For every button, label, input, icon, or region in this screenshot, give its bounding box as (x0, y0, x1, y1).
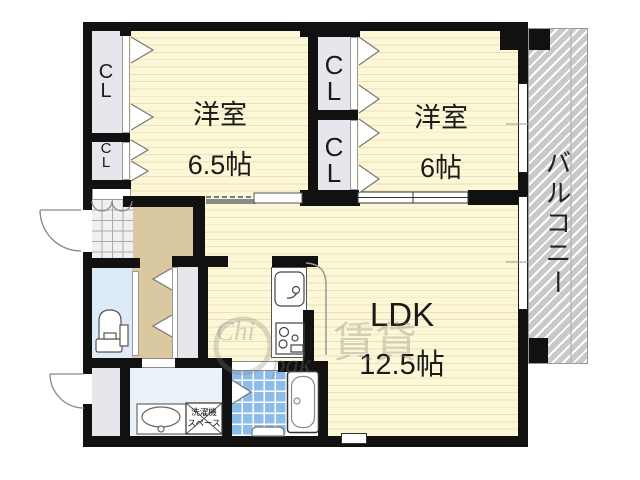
laundry-space-label: 洗濯機 スペース (186, 407, 222, 429)
bath-counter-icon (252, 427, 284, 436)
bedroom1-label: 洋室 6.5帖 (140, 81, 300, 199)
bedroom2-name: 洋室 (361, 102, 521, 134)
toilet-icon (96, 310, 128, 352)
entrance-step-arcs (92, 201, 132, 211)
bedroom1-size: 6.5帖 (140, 149, 300, 181)
bedroom2-label: 洋室 6帖 (361, 84, 521, 202)
kitchen-sink-icon (275, 272, 304, 306)
watermark-text: Chi (216, 316, 255, 347)
closet-mid-top-label: C L (318, 52, 350, 104)
entrance-door-arc (40, 210, 84, 408)
closet-left-small-label: C L (91, 142, 121, 170)
washbasin-icon (137, 404, 188, 434)
floorplan: 洋室 6.5帖 洋室 6帖 LDK 12.5帖 バルコニー C L C L C … (0, 0, 640, 480)
balcony-label: バルコニー (539, 124, 576, 324)
closet-mid-bottom-label: C L (318, 134, 350, 186)
watermark-text: pak (272, 349, 311, 380)
bathtub-icon (288, 372, 319, 433)
bedroom1-name: 洋室 (140, 99, 300, 131)
bedroom2-size: 6帖 (361, 152, 521, 184)
watermark-text: 賃貸 (333, 309, 417, 370)
closet-left-large-label: C L (91, 63, 121, 101)
